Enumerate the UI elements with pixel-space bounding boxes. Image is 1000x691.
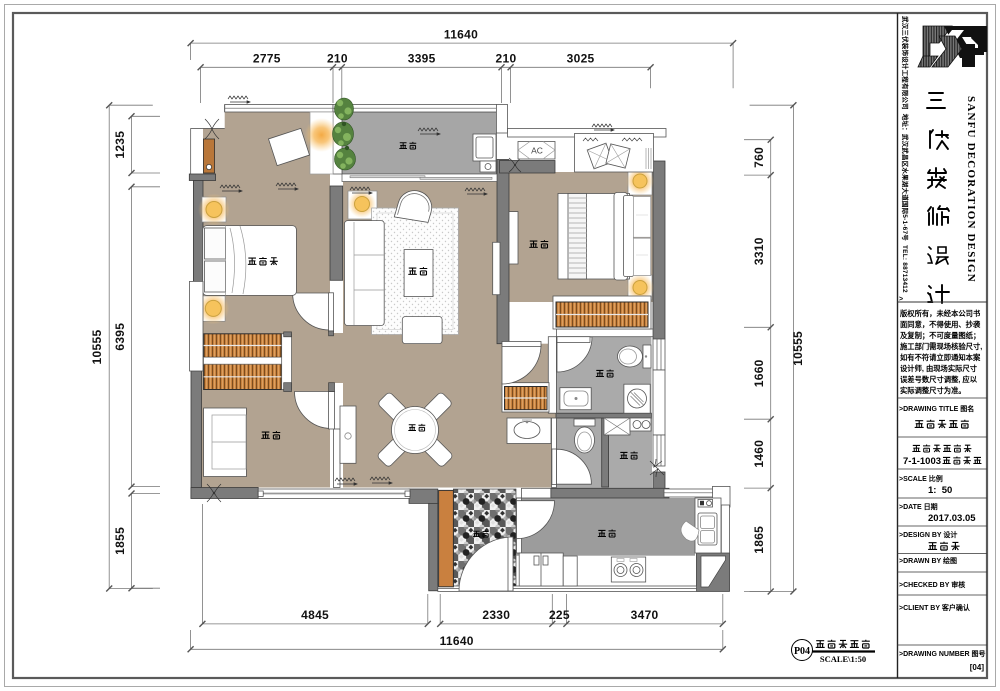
svg-text:SANFU DECORATION DESIGN: SANFU DECORATION DESIGN: [965, 96, 977, 283]
svg-text:>DRAWING TITLE 图名: >DRAWING TITLE 图名: [899, 404, 974, 413]
svg-text:2017.03.05: 2017.03.05: [928, 513, 976, 524]
svg-text:>DRAWING NUMBER 图号: >DRAWING NUMBER 图号: [899, 649, 986, 658]
svg-text:210: 210: [496, 52, 517, 66]
svg-text:>DESIGN BY 设计: >DESIGN BY 设计: [899, 530, 957, 539]
svg-text:面同意，不得使用、抄袭: 面同意，不得使用、抄袭: [900, 320, 981, 329]
svg-text:>: >: [899, 296, 903, 303]
svg-text:3025: 3025: [567, 52, 595, 66]
svg-text:11640: 11640: [444, 28, 478, 42]
svg-text:4845: 4845: [301, 608, 329, 622]
svg-text:设计师, 由现场实际尺寸: 设计师, 由现场实际尺寸: [900, 364, 978, 373]
svg-text:>DRAWN BY 绘图: >DRAWN BY 绘图: [899, 556, 957, 565]
svg-text:1865: 1865: [752, 526, 766, 554]
svg-text:施工部门需现场核验尺寸,: 施工部门需现场核验尺寸,: [900, 342, 982, 351]
svg-text:2775: 2775: [253, 52, 281, 66]
svg-text:P04: P04: [794, 646, 810, 657]
svg-text:10555: 10555: [90, 330, 104, 365]
svg-text:武汉三伏装饰设计工程有限公司 地址：武汉武昌区水果湖大道国: 武汉三伏装饰设计工程有限公司 地址：武汉武昌区水果湖大道国际5-1-67号 TE…: [901, 16, 910, 293]
svg-text:>SCALE 比例: >SCALE 比例: [899, 474, 943, 483]
svg-text:225: 225: [549, 608, 570, 622]
svg-text:210: 210: [327, 52, 348, 66]
svg-text:3310: 3310: [752, 237, 766, 265]
svg-text:760: 760: [752, 147, 766, 168]
svg-text:7-1-1003: 7-1-1003: [903, 456, 941, 467]
svg-text:3395: 3395: [408, 52, 436, 66]
svg-text:>DATE 日期: >DATE 日期: [899, 502, 938, 511]
svg-text:SCALE\1:50: SCALE\1:50: [820, 654, 866, 664]
svg-text:1460: 1460: [752, 440, 766, 468]
svg-text:11640: 11640: [440, 634, 474, 648]
svg-text:版权所有，未经本公司书: 版权所有，未经本公司书: [900, 309, 981, 318]
svg-text:10555: 10555: [791, 331, 805, 366]
svg-text:如有不符请立即通知本案: 如有不符请立即通知本案: [900, 353, 981, 362]
svg-text:>CLIENT BY 客户确认: >CLIENT BY 客户确认: [899, 603, 971, 612]
svg-text:1855: 1855: [113, 527, 127, 555]
svg-text:6395: 6395: [113, 323, 127, 351]
svg-text:3470: 3470: [631, 608, 659, 622]
svg-text:1235: 1235: [113, 131, 127, 159]
svg-text:1660: 1660: [752, 359, 766, 387]
svg-text:误差号数尺寸调整, 应以: 误差号数尺寸调整, 应以: [900, 375, 978, 384]
svg-text:1: 50: 1: 50: [928, 485, 952, 496]
svg-text:2330: 2330: [482, 608, 510, 622]
svg-text:[04]: [04]: [970, 663, 985, 672]
svg-text:>CHECKED BY 审核: >CHECKED BY 审核: [899, 580, 965, 589]
svg-text:AC: AC: [531, 146, 543, 156]
svg-text:实际调整尺寸为准。: 实际调整尺寸为准。: [900, 386, 966, 395]
svg-text:及复制；不可度量图纸；: 及复制；不可度量图纸；: [900, 331, 980, 341]
